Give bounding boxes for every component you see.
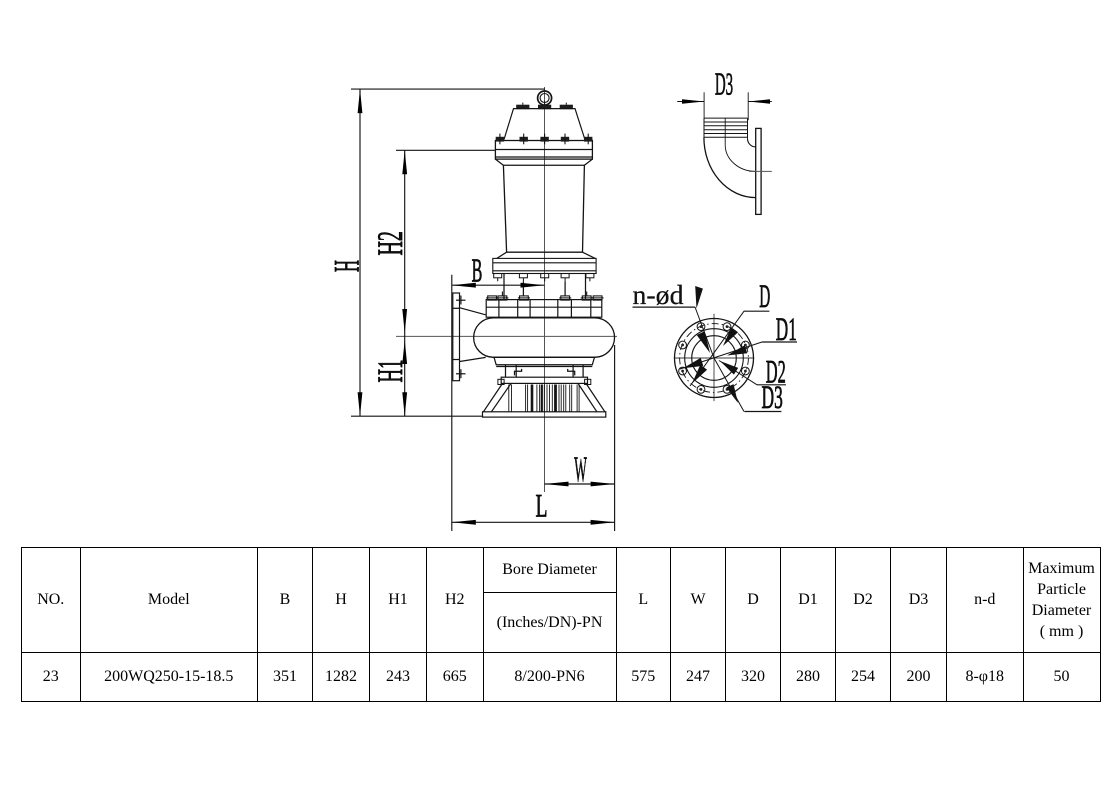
svg-text:L: L xyxy=(536,489,548,525)
svg-text:D: D xyxy=(759,279,770,315)
svg-text:H2: H2 xyxy=(370,231,410,256)
svg-text:B: B xyxy=(472,253,483,290)
svg-text:D1: D1 xyxy=(776,312,797,348)
svg-text:H1: H1 xyxy=(370,360,410,383)
svg-text:n-ød: n-ød xyxy=(633,280,685,310)
svg-text:H: H xyxy=(326,260,366,272)
svg-text:W: W xyxy=(574,449,587,489)
svg-text:D3: D3 xyxy=(762,380,783,416)
svg-text:D3: D3 xyxy=(715,65,733,101)
